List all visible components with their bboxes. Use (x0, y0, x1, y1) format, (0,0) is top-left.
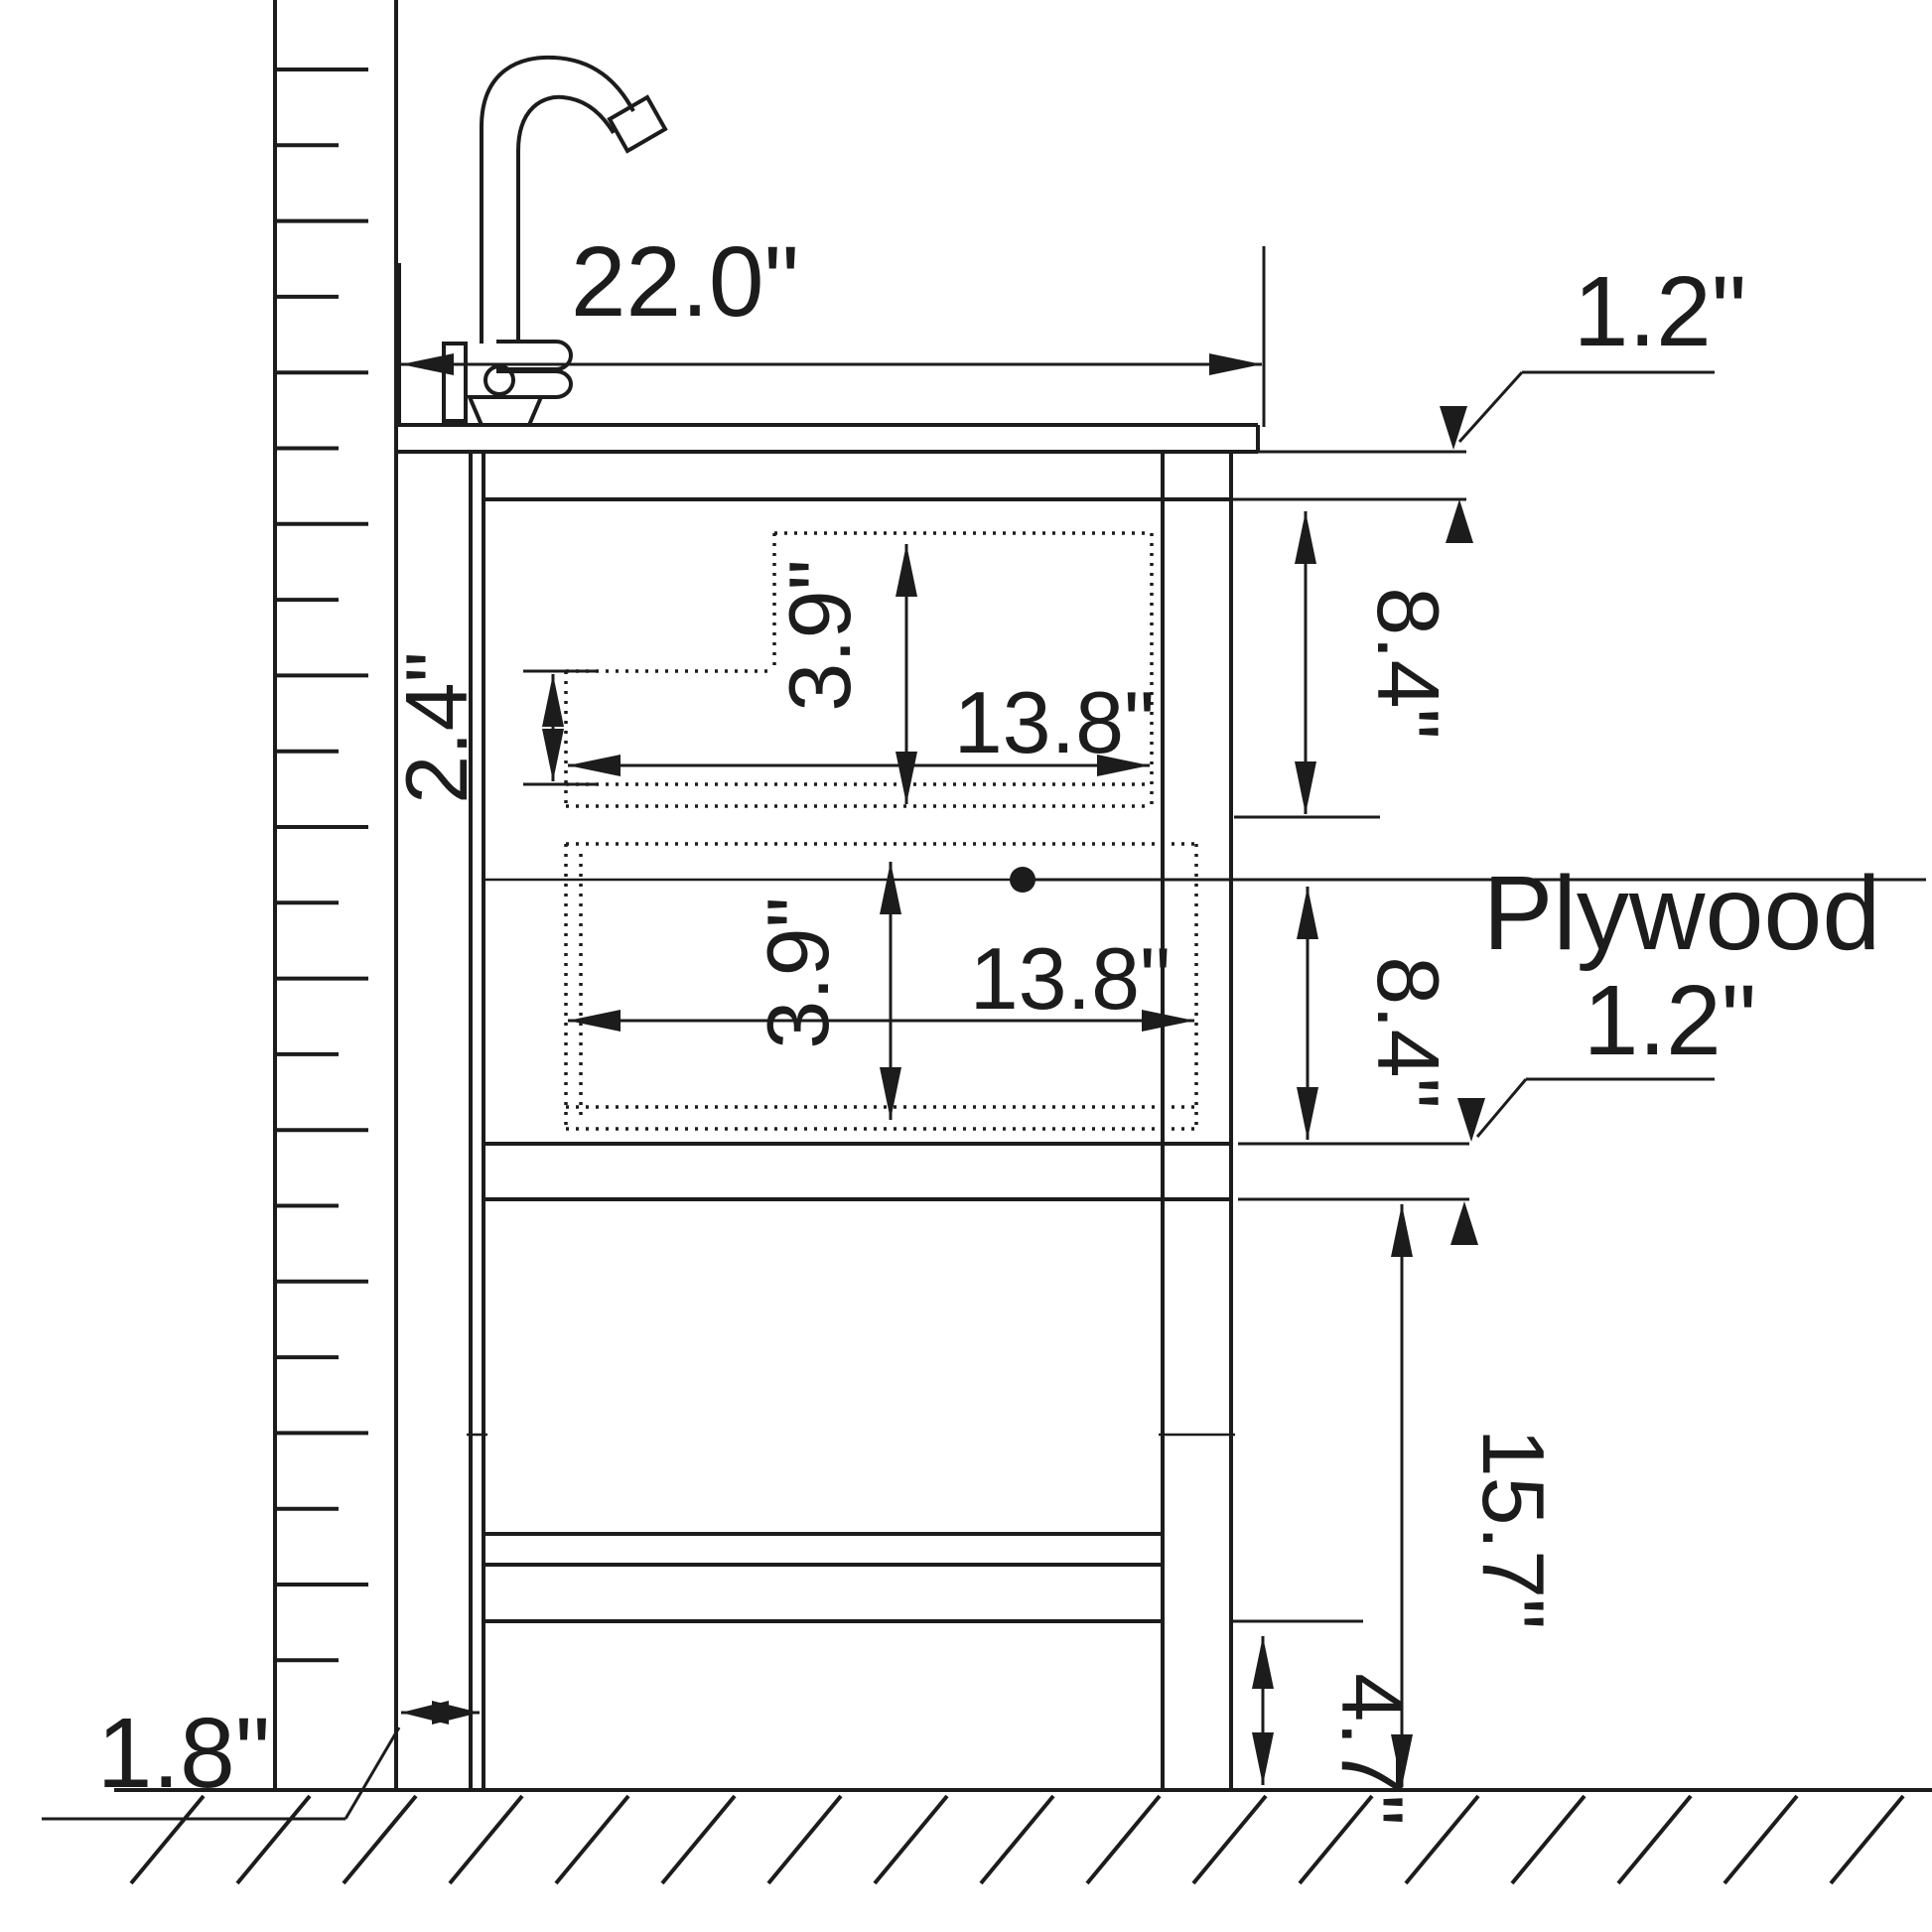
arrow-up-to-rail (1446, 499, 1473, 543)
faucet-mount-bracket (444, 344, 466, 421)
leader-diagonal-2 (1477, 1079, 1526, 1137)
faucet-spout-tip (610, 97, 665, 151)
dim-top-rail-thickness: 1.2" (1231, 256, 1746, 543)
floor (114, 1790, 1932, 1883)
dim-upper-section-height: 8.4" (1234, 511, 1457, 817)
label-lower-drawer-width: 13.8" (970, 929, 1172, 1028)
faucet-base (470, 397, 541, 425)
label-drawer-front-step: 2.4" (387, 651, 485, 804)
leader-diagonal-18 (345, 1727, 399, 1819)
technical-drawing: 22.0" 1.2" 8.4" Plywood 8.4" 1.2" (0, 0, 1932, 1932)
label-upper-drawer-width: 13.8" (954, 673, 1156, 771)
dim-shelf-thickness: 1.2" (1238, 965, 1756, 1245)
wall-hatch-ticks (277, 69, 368, 1660)
label-plywood: Plywood (1483, 855, 1881, 972)
arrow-down-to-slab (1440, 406, 1467, 450)
floor-hatch-stroke (1831, 1796, 1903, 1883)
dim-upper-drawer: 13.8" 3.9" 2.4" (387, 544, 1155, 804)
floor-hatch-stroke (768, 1796, 841, 1883)
label-upper-drawer-height: 3.9" (770, 559, 869, 712)
countertop (396, 425, 1258, 452)
floor-hatch-stroke (1512, 1796, 1585, 1883)
floor-hatch-strokes (131, 1796, 1932, 1883)
floor-hatch-stroke (662, 1796, 735, 1883)
label-lower-section-height: 8.4" (1359, 956, 1457, 1109)
floor-hatch-stroke (981, 1796, 1053, 1883)
arrow-down-to-shelf (1457, 1098, 1485, 1142)
floor-hatch-stroke (556, 1796, 628, 1883)
label-countertop-width: 22.0" (571, 226, 799, 338)
floor-hatch-stroke (344, 1796, 416, 1883)
dim-leg-space-height: 15.7" (1402, 1204, 1563, 1787)
leader-diagonal-1 (1459, 372, 1522, 442)
drawing-canvas: 22.0" 1.2" 8.4" Plywood 8.4" 1.2" (0, 0, 1932, 1932)
dim-lower-drawer: 13.8" 3.9" (568, 862, 1194, 1120)
wall (275, 0, 399, 1790)
label-bottom-clearance: 4.7" (1323, 1673, 1422, 1826)
floor-hatch-stroke (1193, 1796, 1266, 1883)
floor-hatch-stroke (1618, 1796, 1691, 1883)
floor-hatch-stroke (1087, 1796, 1160, 1883)
label-wall-gap: 1.8" (97, 1698, 271, 1809)
label-shelf-thickness: 1.2" (1584, 965, 1757, 1076)
floor-hatch-stroke (237, 1796, 310, 1883)
floor-hatch-stroke (131, 1796, 204, 1883)
floor-hatch-stroke (875, 1796, 947, 1883)
floor-hatch-stroke (450, 1796, 522, 1883)
label-lower-drawer-height: 3.9" (749, 897, 847, 1049)
label-leg-space-height: 15.7" (1464, 1429, 1563, 1630)
dim-bottom-clearance: 4.7" (1231, 1621, 1422, 1826)
floor-hatch-stroke (1725, 1796, 1797, 1883)
dim-lower-section-height: 8.4" (1308, 887, 1457, 1140)
arrow-up-to-shelf (1450, 1201, 1478, 1245)
label-upper-section-height: 8.4" (1359, 587, 1457, 740)
label-top-rail-thickness: 1.2" (1574, 256, 1747, 367)
